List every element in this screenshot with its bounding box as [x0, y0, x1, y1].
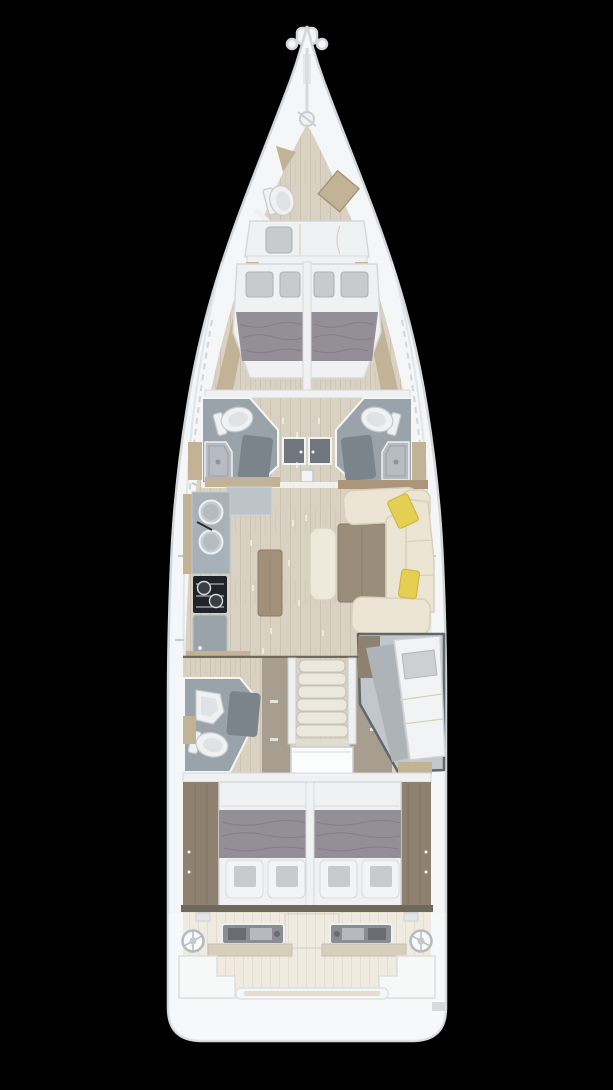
- burner: [210, 595, 223, 608]
- floorplan-canvas: [0, 0, 613, 1090]
- pillow: [268, 860, 305, 898]
- berth-pillow: [402, 650, 437, 679]
- pillow: [320, 860, 357, 898]
- pillow: [362, 860, 399, 898]
- aft-cabin-port-bed: [219, 782, 307, 906]
- cabin-divider: [303, 262, 311, 396]
- stair-rail-starboard: [348, 658, 356, 744]
- pillow: [314, 272, 334, 297]
- vanity: [188, 442, 202, 480]
- crew-berth: [245, 221, 369, 257]
- shower-mat: [340, 434, 376, 481]
- sofa-back-trim: [338, 480, 428, 489]
- shower-mat: [237, 434, 273, 481]
- aft-panel-port: [183, 782, 219, 906]
- shower-mat: [226, 691, 261, 738]
- sofa-seat-bottom: [351, 597, 430, 636]
- yellow-cushion: [398, 569, 420, 599]
- cockpit-bulkhead: [181, 905, 433, 912]
- vanity: [183, 716, 196, 744]
- pillow: [246, 272, 273, 297]
- stair-rail-port: [288, 658, 296, 744]
- pillow: [280, 272, 300, 297]
- mast-post: [301, 470, 313, 482]
- galley-locker-top: [205, 477, 280, 487]
- saloon-chaise: [310, 528, 336, 600]
- burner: [198, 582, 211, 595]
- pillow: [341, 272, 368, 297]
- companionway: [288, 658, 356, 777]
- bulkhead-mid: [205, 390, 410, 398]
- shower-tray: [205, 442, 232, 480]
- bow-ear-port: [287, 39, 297, 49]
- yacht-floorplan: [0, 0, 613, 1090]
- berth-cabinet: [398, 762, 432, 774]
- companionway-steps: [296, 660, 348, 737]
- vanity: [412, 442, 426, 480]
- galley-cabinet: [193, 615, 227, 653]
- forward-cabin-starboard-bed: [310, 264, 381, 378]
- bow-ear-starboard: [317, 39, 327, 49]
- pillow: [226, 860, 263, 898]
- bulkhead-aft: [183, 773, 431, 782]
- cockpit-wash: [168, 913, 446, 1043]
- crew-pillow: [266, 227, 292, 253]
- aft-cabin-divider: [306, 782, 314, 906]
- stove: [193, 576, 227, 613]
- forward-cabin-port-bed: [233, 264, 304, 378]
- stair-surround-port: [262, 658, 290, 776]
- aft-cabin-starboard-bed: [313, 782, 401, 906]
- shower-tray: [382, 442, 409, 480]
- step-landing: [296, 739, 348, 746]
- aft-cabins: [183, 782, 431, 906]
- worktop-upper: [226, 487, 272, 515]
- galley-wood-side: [183, 494, 192, 574]
